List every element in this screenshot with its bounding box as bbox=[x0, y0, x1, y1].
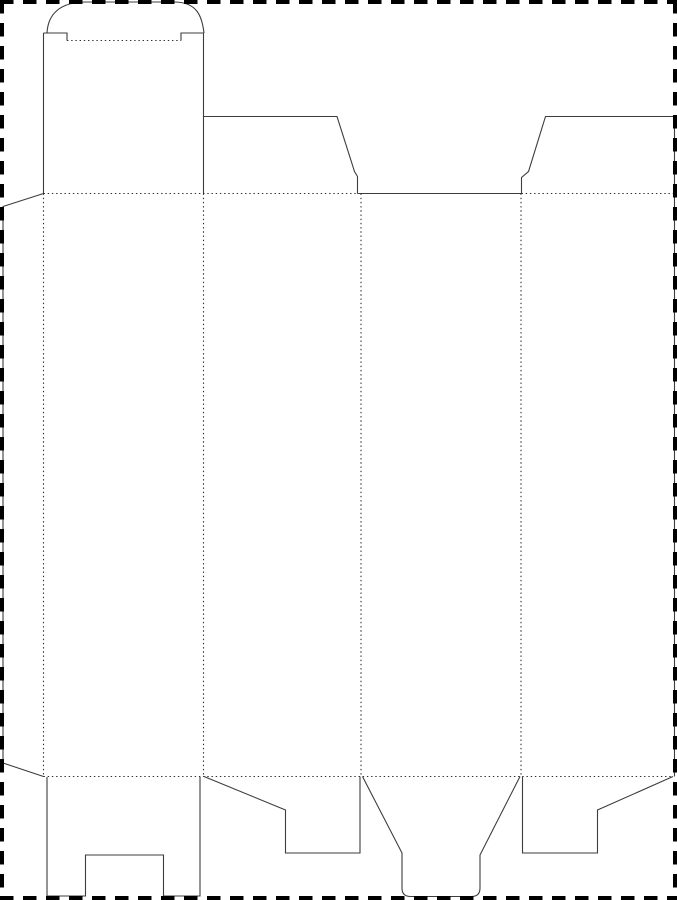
tuck-tab-arc bbox=[47, 2, 204, 33]
sheet-border-group bbox=[0, 0, 677, 900]
glue-flap-outline bbox=[3, 194, 44, 777]
fold-lines-group bbox=[44, 41, 675, 777]
bottom-flap-2-outline bbox=[204, 777, 360, 854]
top-flap-2-outline bbox=[204, 117, 358, 194]
top-flap-4-outline bbox=[522, 117, 675, 194]
bottom-flap-1-outline bbox=[47, 777, 200, 896]
tuck-flap-shoulder-right bbox=[181, 33, 204, 41]
dieline-diagram bbox=[0, 0, 677, 900]
cut-lines-group bbox=[3, 2, 675, 897]
tuck-flap-shoulder-left bbox=[44, 33, 68, 41]
bottom-flap-4-outline bbox=[523, 777, 674, 854]
bottom-flap-3-outline bbox=[363, 777, 521, 897]
dieline-canvas bbox=[0, 0, 677, 900]
